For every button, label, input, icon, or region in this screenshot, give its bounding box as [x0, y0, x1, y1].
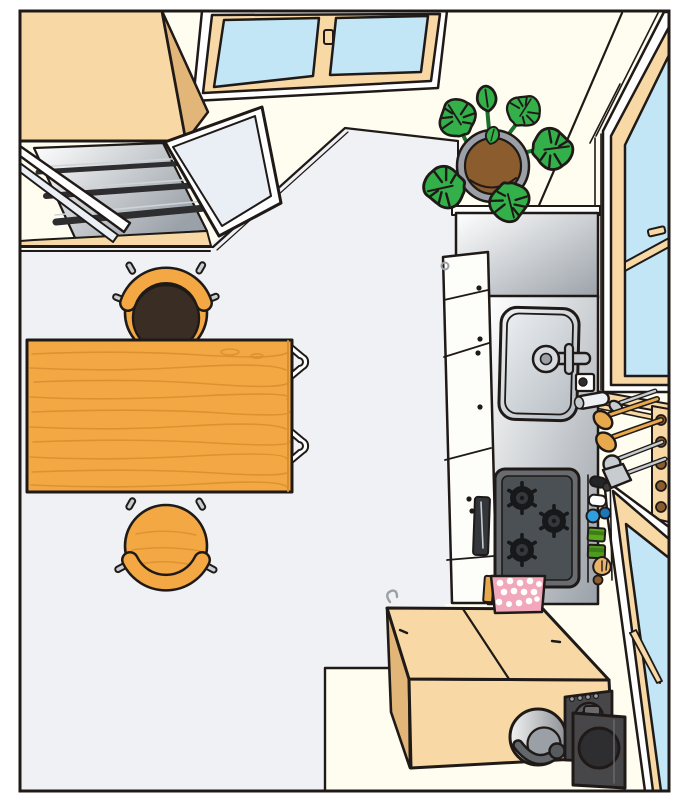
- sliding-window-top: [193, 11, 447, 101]
- kitchen-illustration: [0, 0, 680, 803]
- cupboard-top: [20, 11, 186, 141]
- window-pane-right: [330, 16, 428, 75]
- dining-table: [27, 340, 308, 492]
- kitchen-counter: [442, 206, 610, 613]
- kitchen-svg: [0, 0, 680, 803]
- window-latch: [324, 30, 333, 44]
- soap-dispenser: [576, 374, 594, 391]
- pot: [510, 709, 566, 765]
- bottle-green-1: [588, 527, 606, 541]
- gas-stove: [495, 469, 579, 587]
- table-top: [27, 340, 292, 492]
- pot-handle-knob: [550, 744, 565, 759]
- bottle-white: [588, 494, 606, 507]
- dish-towel: [491, 576, 545, 613]
- bottle-blue: [587, 510, 600, 523]
- window-pane-left: [214, 18, 319, 87]
- cooker-front-dial: [579, 728, 619, 768]
